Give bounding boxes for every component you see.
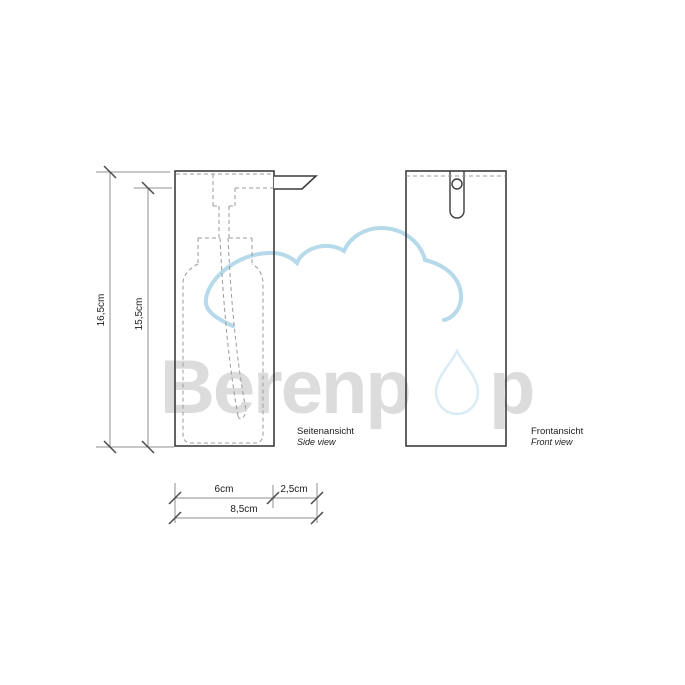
watermark-text-after: p <box>489 345 533 430</box>
dim-label-depth-spout: 2,5cm <box>280 484 307 495</box>
dim-label-total-height: 16,5cm <box>96 294 107 327</box>
front-view-label-de: Frontansicht <box>531 426 584 437</box>
technical-drawing-canvas: Berenp p <box>0 0 685 685</box>
watermark-drop-icon <box>436 351 478 414</box>
dim-label-depth-body: 6cm <box>215 484 234 495</box>
side-view-label-en: Side view <box>297 437 336 447</box>
side-view-label-de: Seitenansicht <box>297 426 354 437</box>
front-view-spout-slot <box>450 171 464 218</box>
front-view-nozzle-hole <box>452 179 462 189</box>
side-view-body <box>175 171 274 446</box>
view-captions: Seitenansicht Side view Frontansicht Fro… <box>297 426 584 447</box>
side-view-spout <box>274 176 316 189</box>
front-view-label-en: Front view <box>531 437 573 447</box>
dim-label-depth-total: 8,5cm <box>230 504 257 515</box>
dim-label-body-height: 15,5cm <box>134 298 145 331</box>
